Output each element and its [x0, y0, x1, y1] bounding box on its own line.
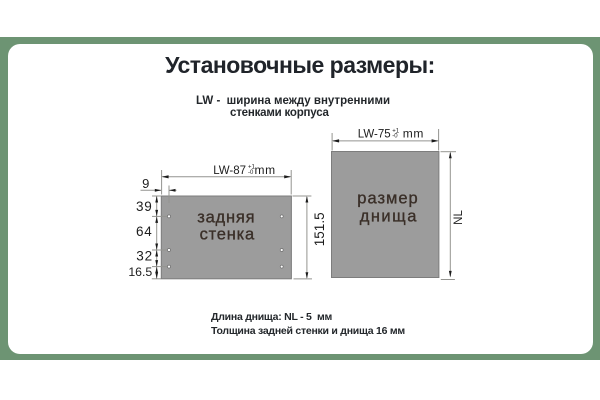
svg-text:NL: NL: [453, 210, 465, 225]
svg-text:LW-75: LW-75: [358, 129, 391, 141]
svg-text:mm: mm: [403, 127, 424, 141]
svg-text:32: 32: [136, 249, 153, 264]
svg-text:LW-87: LW-87: [213, 165, 246, 177]
svg-text:размер: размер: [357, 190, 418, 208]
svg-text:-0: -0: [392, 133, 398, 139]
svg-text:днища: днища: [360, 207, 418, 225]
svg-text:стенка: стенка: [200, 225, 255, 243]
svg-text:9: 9: [142, 176, 149, 191]
svg-text:39: 39: [136, 199, 153, 214]
svg-text:16.5: 16.5: [128, 265, 152, 279]
svg-text:mm: mm: [255, 163, 276, 177]
svg-text:-0: -0: [248, 170, 254, 176]
svg-text:задняя: задняя: [197, 208, 255, 226]
svg-text:64: 64: [136, 224, 153, 239]
svg-text:151.5: 151.5: [312, 212, 327, 246]
